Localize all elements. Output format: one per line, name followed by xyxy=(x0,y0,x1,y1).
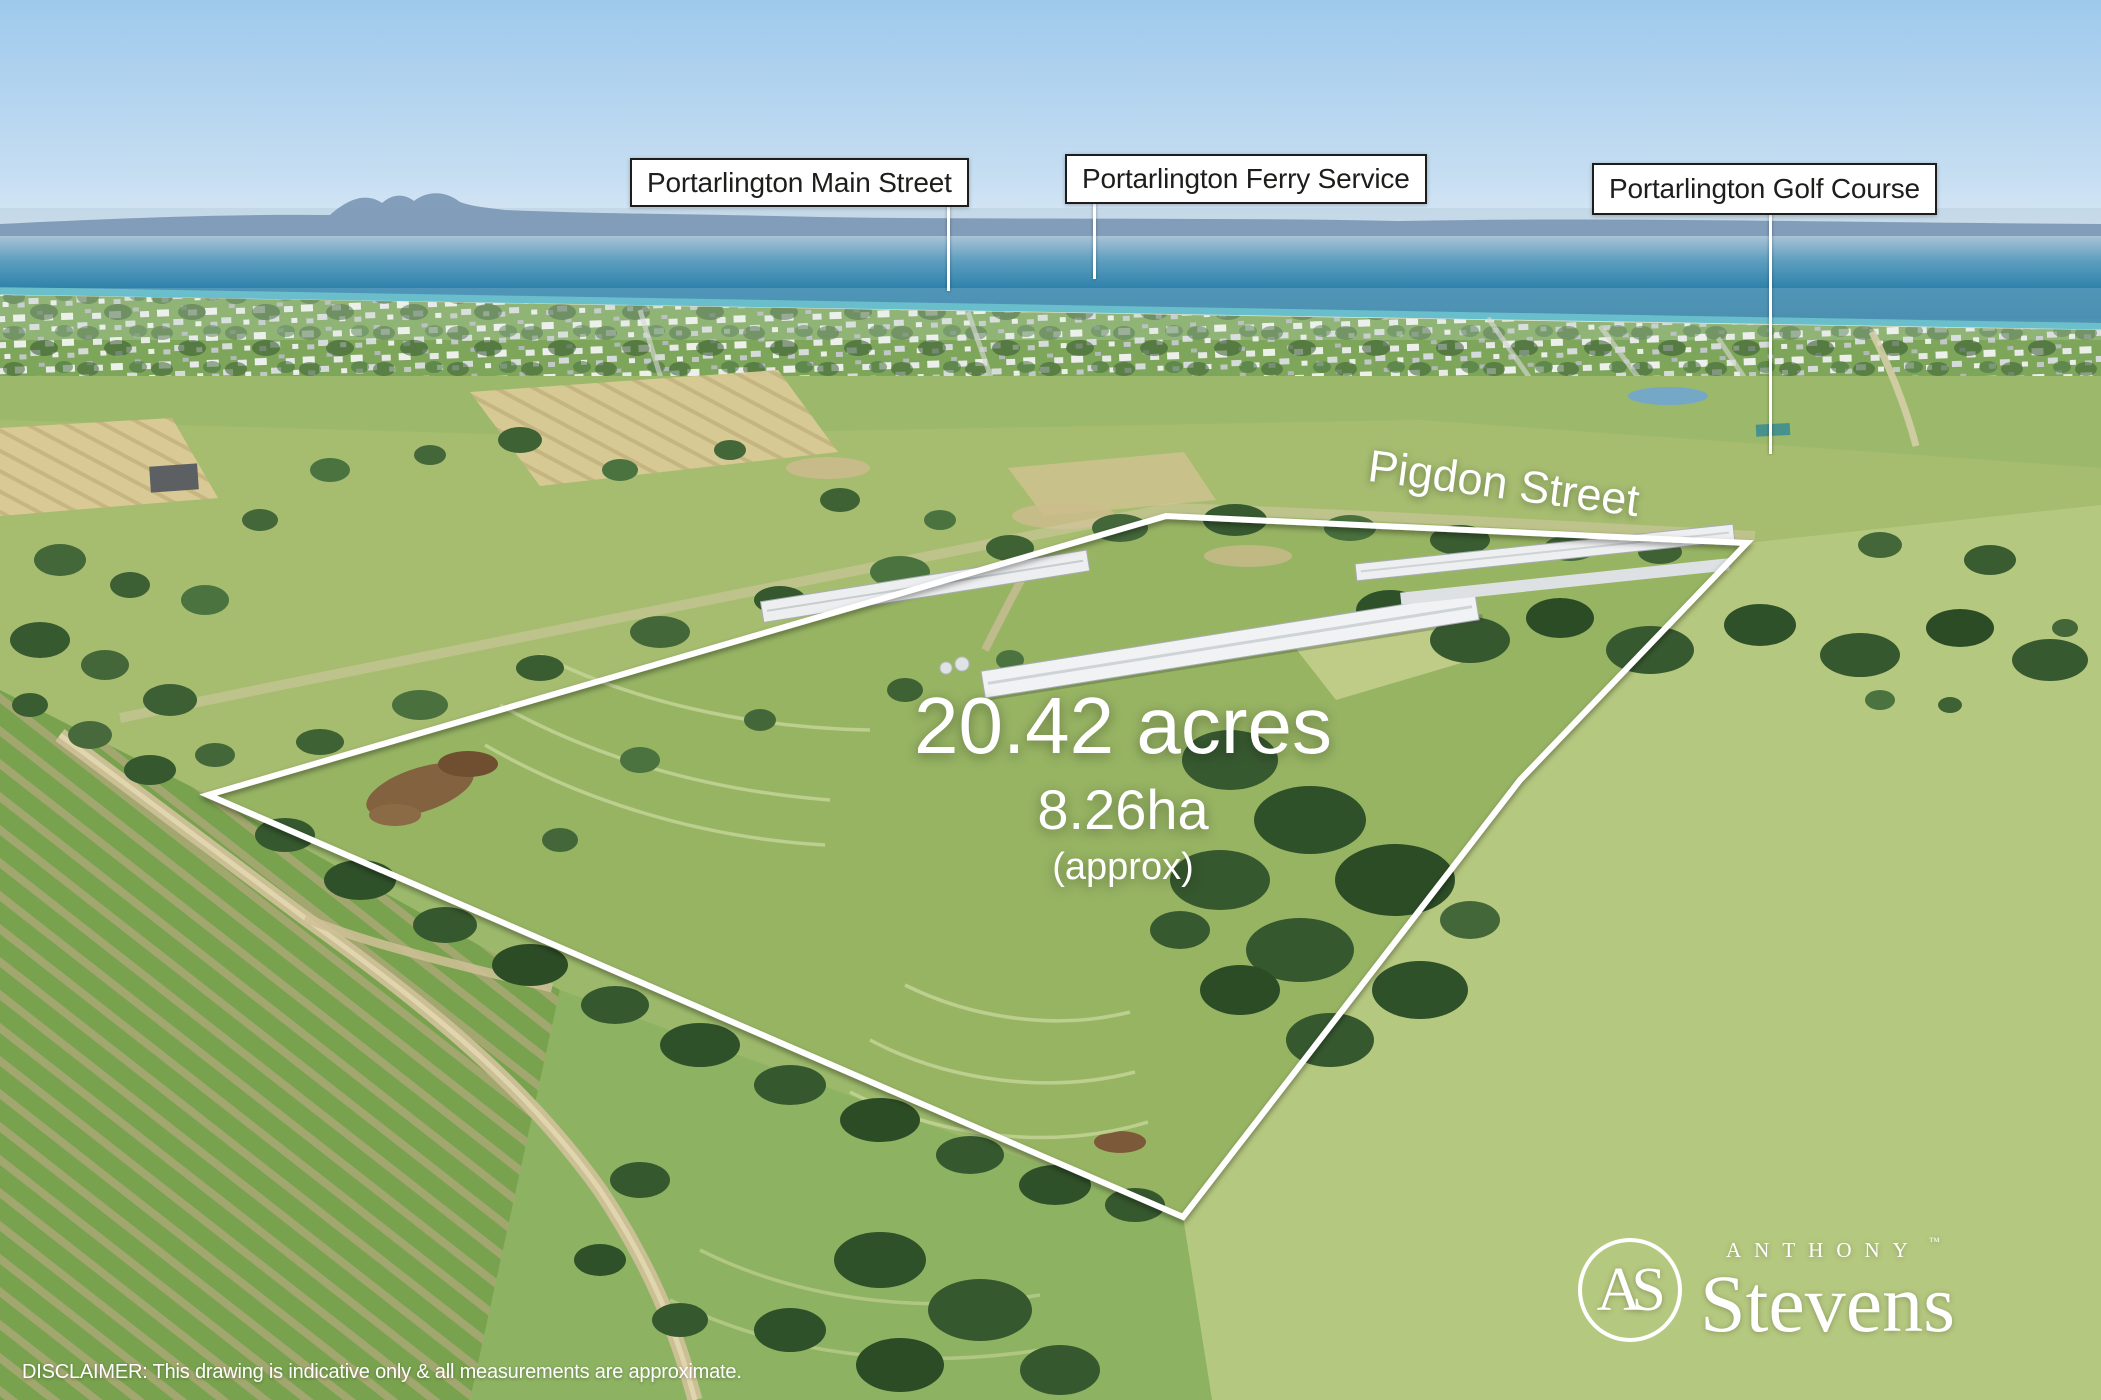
area-hectares: 8.26ha xyxy=(823,782,1423,838)
agency-last-name: Stevens xyxy=(1700,1265,1955,1343)
area-approx-qualifier: (approx) xyxy=(823,848,1423,886)
pointer-line-main-street xyxy=(947,203,950,291)
pointer-line-ferry-service xyxy=(1093,200,1096,279)
location-label-golf-course: Portarlington Golf Course xyxy=(1592,163,1937,215)
pointer-line-golf-course xyxy=(1769,211,1772,454)
disclaimer-text: DISCLAIMER: This drawing is indicative o… xyxy=(22,1361,742,1384)
as-monogram-icon: AS xyxy=(1578,1238,1682,1342)
tennis-court xyxy=(1756,423,1791,437)
location-label-text: Portarlington Golf Course xyxy=(1609,173,1920,205)
agency-name: ANTHONY ™ Stevens xyxy=(1700,1238,1955,1343)
golf-pond xyxy=(1628,387,1708,405)
aerial-property-photo: Portarlington Main Street Portarlington … xyxy=(0,0,2101,1400)
location-label-text: Portarlington Ferry Service xyxy=(1082,163,1410,195)
location-label-ferry-service: Portarlington Ferry Service xyxy=(1065,154,1427,204)
location-label-main-street: Portarlington Main Street xyxy=(630,158,969,207)
location-label-text: Portarlington Main Street xyxy=(647,167,952,199)
area-acres: 20.42 acres xyxy=(823,686,1423,766)
agency-logo: AS ANTHONY ™ Stevens xyxy=(1578,1238,1955,1343)
land-area-overlay: 20.42 acres 8.26ha (approx) xyxy=(823,686,1423,886)
trademark-symbol: ™ xyxy=(1929,1236,1940,1248)
